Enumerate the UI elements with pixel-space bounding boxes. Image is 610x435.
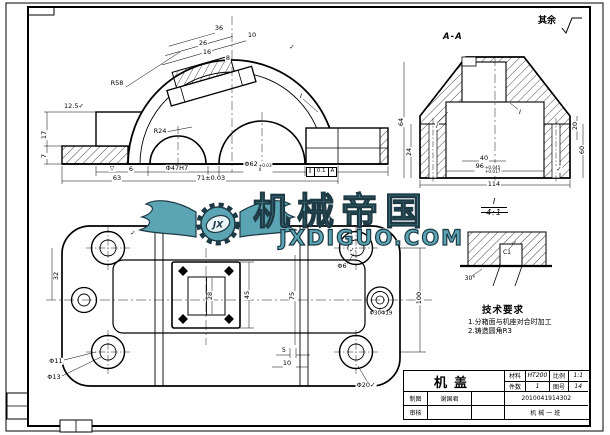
detail-scale-label: I 4:1	[481, 198, 507, 217]
dim-d6: Φ6	[336, 263, 347, 270]
dim-26: 26	[198, 40, 208, 47]
watermark-site: JXDIGUO.COM	[279, 228, 464, 249]
drawn-by-label: 制图	[404, 392, 428, 406]
drawing-no-value: 14	[569, 382, 588, 393]
dim-20: 20	[572, 121, 579, 131]
dim-8: 8	[225, 55, 231, 62]
dim-71: 71±0.03	[196, 175, 226, 182]
material-value: HT200	[526, 371, 550, 382]
quantity-value: 1	[526, 382, 550, 393]
watermark-title: 机械帝国	[253, 193, 429, 230]
dim-100: 100	[416, 291, 423, 305]
empty-cell	[472, 392, 505, 406]
dim-63: 63	[112, 175, 122, 182]
detail-scale: 4:1	[481, 208, 507, 217]
dim-10: 10	[247, 32, 257, 39]
technical-requirements: 技术要求 1.分箱面与机座对合时加工 2.铸造圆角R3	[468, 306, 592, 335]
drawing-no-label: 图号	[550, 382, 569, 393]
detail-letter: I	[481, 198, 507, 208]
detail-ref-I: I	[518, 109, 522, 116]
dim-d20: Φ20✓	[356, 382, 377, 389]
dim-75: 75	[289, 291, 296, 301]
material-label: 材料	[505, 371, 526, 382]
dim-60: 60	[579, 145, 586, 155]
dim-17: 17	[41, 130, 48, 140]
dim-32: 32	[53, 271, 60, 281]
dim-d13: Φ13	[46, 374, 61, 381]
empty-cell	[472, 406, 505, 420]
scale-value: 1:1	[569, 371, 588, 382]
dim-28: 28	[207, 291, 214, 301]
roughness-check: ✓	[288, 44, 295, 51]
dim-d11: Φ11	[48, 358, 63, 365]
part-name: 机盖	[404, 371, 505, 392]
title-block: 机盖 材料 HT200 比例 1:1 件数 1 图号 14 制图 谢国君 审核 …	[403, 370, 590, 420]
dim-C1: C1	[502, 250, 512, 256]
dim-16: 16	[202, 49, 212, 56]
student-id: 2010041914302	[505, 392, 588, 406]
dim-7: 7	[41, 153, 48, 159]
tech-req-title: 技术要求	[482, 306, 592, 316]
detail-ref-I: I	[435, 123, 439, 130]
detail-ref-I: I	[299, 93, 303, 100]
roughness-check: ✓	[555, 166, 562, 173]
dim-30deg: 30°	[464, 276, 477, 282]
dim-114: 114	[487, 181, 501, 188]
checked-by-label: 审核	[404, 406, 428, 420]
section-label: A-A	[443, 33, 463, 42]
scale-label: 比例	[550, 371, 569, 382]
drawn-by-value: 谢国君	[428, 392, 472, 406]
radius-R58: R58	[110, 80, 125, 87]
checked-by-value	[428, 406, 472, 420]
dim-d30-d19: Φ30Φ19	[369, 311, 394, 317]
dim-47H7: Φ47H7	[165, 165, 189, 172]
radius-R24: R24	[153, 128, 168, 135]
dim-40: 40	[479, 155, 489, 162]
surface-triangle: ▽	[109, 166, 116, 172]
gdt-value: 0.1	[315, 168, 329, 176]
tech-req-item: 2.铸造圆角R3	[468, 328, 592, 335]
dim-36: 36	[214, 25, 224, 32]
dim-62: Φ62+0.030	[243, 161, 272, 173]
dim-6: 6	[128, 166, 134, 173]
class-name: 机械一班	[505, 406, 588, 420]
drawing-sheet: JX 361026168✓R58R2412.5✓1776Φ47H7Φ62+0.0…	[0, 0, 610, 435]
roughness-check: ✓	[129, 230, 136, 237]
surface-finish-note: 其余	[538, 17, 556, 26]
gdt-datum: A	[329, 168, 337, 176]
surplus-text: 其余	[538, 17, 556, 26]
quantity-label: 件数	[505, 382, 526, 393]
gdt-symbol: ∥	[307, 168, 315, 176]
dim-24: 24	[406, 147, 413, 157]
dim-45: 45	[244, 290, 251, 300]
dim-96: 96+0.045+0.017	[475, 163, 502, 175]
dim-5: 5	[281, 347, 287, 354]
dim-64: 64	[398, 117, 405, 127]
tech-req-item: 1.分箱面与机座对合时加工	[468, 319, 592, 326]
gdt-frame: ∥ 0.1 A	[306, 167, 337, 177]
dim-10b: 10	[282, 360, 292, 367]
roughness-12-5: 12.5✓	[63, 103, 85, 110]
